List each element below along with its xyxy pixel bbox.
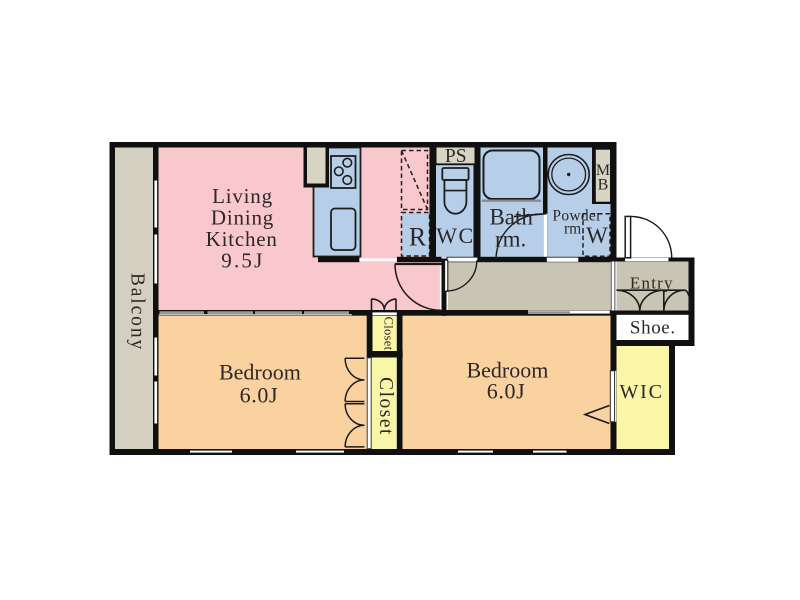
svg-text:Dining: Dining bbox=[211, 206, 274, 230]
svg-text:Bedroom: Bedroom bbox=[219, 360, 301, 385]
svg-text:rm.: rm. bbox=[495, 227, 526, 252]
svg-text:WIC: WIC bbox=[619, 381, 663, 403]
svg-text:R: R bbox=[409, 223, 427, 252]
svg-text:rm.: rm. bbox=[564, 221, 585, 238]
svg-text:Shoe.: Shoe. bbox=[630, 317, 676, 338]
svg-text:9.5J: 9.5J bbox=[221, 248, 264, 272]
svg-text:WC: WC bbox=[436, 223, 474, 248]
svg-text:Closet: Closet bbox=[381, 317, 395, 351]
svg-text:6.0J: 6.0J bbox=[240, 382, 278, 407]
svg-text:W: W bbox=[586, 223, 608, 248]
svg-text:Balcony: Balcony bbox=[127, 273, 148, 351]
svg-text:PS: PS bbox=[445, 146, 467, 167]
svg-text:6.0J: 6.0J bbox=[487, 379, 525, 404]
svg-text:Living: Living bbox=[212, 184, 273, 208]
svg-text:Entry: Entry bbox=[630, 274, 674, 293]
svg-text:B: B bbox=[598, 176, 609, 193]
svg-text:Closet: Closet bbox=[375, 377, 396, 436]
